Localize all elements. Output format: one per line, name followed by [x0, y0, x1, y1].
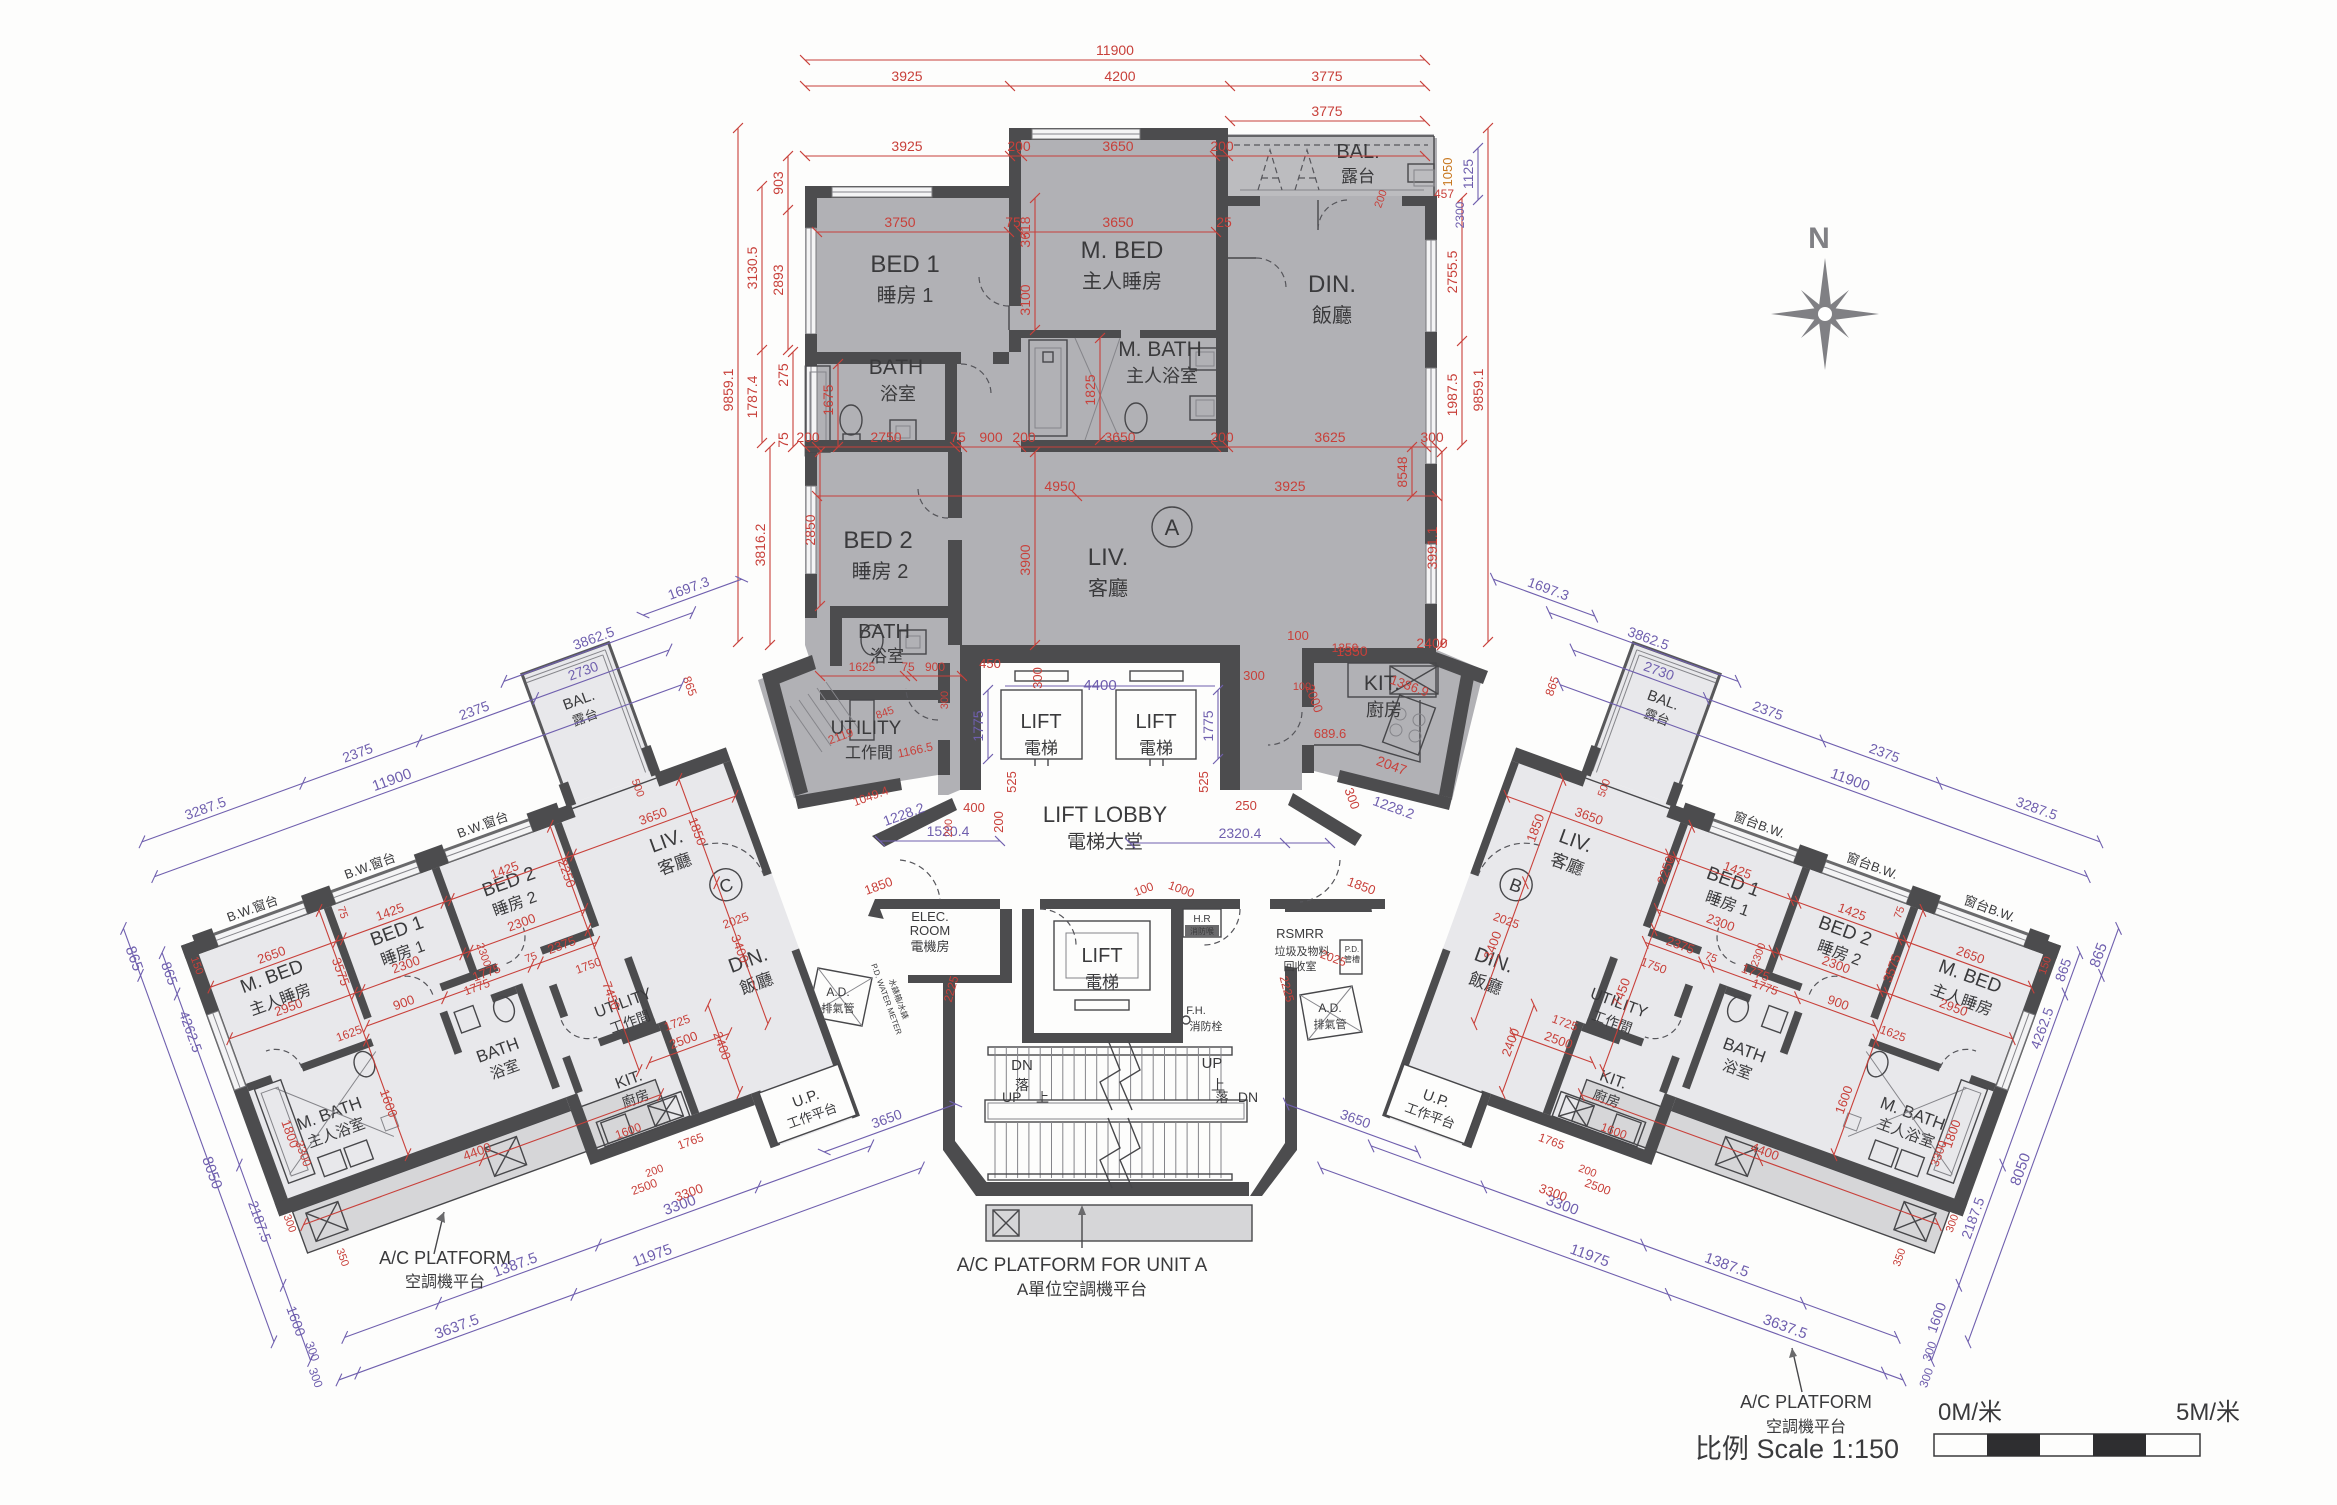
svg-text:900: 900	[979, 429, 1003, 445]
svg-text:11900: 11900	[1096, 42, 1134, 58]
svg-text:2320.4: 2320.4	[1219, 825, 1262, 841]
svg-text:1775: 1775	[1200, 710, 1216, 741]
svg-text:A.D.: A.D.	[826, 985, 849, 999]
svg-text:A/C PLATFORM FOR UNIT A: A/C PLATFORM FOR UNIT A	[957, 1255, 1208, 1276]
svg-text:LIFT LOBBY: LIFT LOBBY	[1043, 802, 1168, 827]
svg-text:廚房: 廚房	[1366, 699, 1402, 720]
svg-text:525: 525	[1196, 771, 1211, 793]
svg-text:LIFT: LIFT	[1135, 711, 1176, 733]
svg-text:M. BED: M. BED	[1081, 237, 1164, 264]
svg-text:200: 200	[1012, 429, 1036, 445]
svg-text:DIN.: DIN.	[1308, 271, 1356, 298]
svg-text:75: 75	[950, 429, 966, 445]
svg-text:8548: 8548	[1394, 456, 1410, 487]
svg-text:上: 上	[1036, 1090, 1049, 1105]
svg-text:275: 275	[775, 363, 791, 387]
svg-text:1787.4: 1787.4	[744, 375, 760, 418]
svg-text:電梯: 電梯	[1024, 739, 1058, 758]
svg-text:300: 300	[1420, 429, 1444, 445]
svg-text:450: 450	[979, 656, 1001, 671]
svg-text:回收室: 回收室	[1284, 959, 1317, 973]
svg-text:N: N	[1808, 222, 1830, 255]
svg-text:3816.2: 3816.2	[752, 523, 768, 566]
svg-text:689.6: 689.6	[1314, 726, 1347, 741]
svg-text:2893: 2893	[770, 264, 786, 295]
svg-text:3650: 3650	[1102, 138, 1133, 154]
svg-text:100: 100	[1293, 681, 1311, 693]
svg-text:525: 525	[1004, 771, 1019, 793]
svg-text:睡房 1: 睡房 1	[877, 284, 934, 307]
svg-text:1825: 1825	[1082, 374, 1098, 405]
svg-text:9859.1: 9859.1	[1470, 368, 1486, 411]
svg-text:UP: UP	[1202, 1055, 1223, 1072]
svg-text:2750: 2750	[870, 429, 901, 445]
svg-text:3650: 3650	[1104, 429, 1135, 445]
svg-text:2755.5: 2755.5	[1444, 250, 1460, 293]
svg-text:主人睡房: 主人睡房	[1082, 270, 1162, 293]
svg-text:BED 2: BED 2	[843, 527, 912, 554]
svg-text:1350: 1350	[1332, 641, 1359, 655]
svg-text:飯廳: 飯廳	[1312, 304, 1352, 327]
svg-text:200: 200	[796, 429, 820, 445]
svg-text:ROOM: ROOM	[910, 923, 950, 938]
svg-text:落: 落	[1215, 1090, 1228, 1105]
svg-text:2400: 2400	[1416, 635, 1447, 651]
svg-text:9859.1: 9859.1	[720, 368, 736, 411]
svg-text:BAL.: BAL.	[1336, 141, 1379, 163]
svg-text:DN: DN	[1011, 1057, 1033, 1074]
svg-text:903: 903	[770, 171, 786, 195]
svg-text:電梯: 電梯	[1085, 973, 1119, 992]
svg-text:排氣管: 排氣管	[822, 1001, 855, 1015]
svg-text:3925: 3925	[891, 138, 922, 154]
svg-text:3650: 3650	[1102, 214, 1133, 230]
svg-text:主人浴室: 主人浴室	[1126, 366, 1198, 386]
svg-text:P.D.: P.D.	[1345, 945, 1360, 954]
svg-text:25: 25	[1216, 214, 1232, 230]
svg-text:3775: 3775	[1311, 103, 1342, 119]
svg-text:電梯: 電梯	[1139, 739, 1173, 758]
svg-text:電梯大堂: 電梯大堂	[1067, 831, 1143, 853]
svg-text:客廳: 客廳	[1088, 577, 1128, 600]
svg-text:1050: 1050	[1440, 158, 1455, 187]
svg-text:75: 75	[775, 432, 791, 448]
svg-text:300: 300	[1030, 667, 1045, 689]
svg-text:100: 100	[1287, 628, 1309, 643]
svg-text:5M/米: 5M/米	[2176, 1399, 2240, 1426]
svg-text:200: 200	[943, 819, 955, 837]
svg-text:LIFT: LIFT	[1081, 945, 1122, 967]
svg-text:消防喉: 消防喉	[1190, 926, 1214, 936]
svg-text:排氣管: 排氣管	[1314, 1017, 1347, 1031]
svg-text:工作間: 工作間	[845, 744, 893, 762]
svg-text:1675: 1675	[820, 384, 836, 415]
svg-text:1987.5: 1987.5	[1444, 373, 1460, 416]
svg-text:2850: 2850	[802, 514, 818, 545]
svg-text:3750: 3750	[884, 214, 915, 230]
svg-text:200: 200	[1007, 138, 1031, 154]
svg-text:400: 400	[963, 800, 985, 815]
svg-text:3925: 3925	[891, 68, 922, 84]
svg-text:300: 300	[939, 691, 951, 709]
svg-text:1625: 1625	[849, 660, 876, 674]
svg-text:A: A	[1165, 515, 1180, 540]
svg-text:浴室: 浴室	[880, 384, 916, 404]
svg-text:3100: 3100	[1017, 284, 1033, 315]
svg-text:4950: 4950	[1044, 478, 1075, 494]
svg-text:1125: 1125	[1460, 159, 1476, 189]
svg-text:0M/米: 0M/米	[1938, 1399, 2002, 1426]
svg-text:BED 1: BED 1	[870, 251, 939, 278]
svg-text:900: 900	[925, 660, 945, 674]
svg-text:空調機平台: 空調機平台	[405, 1273, 485, 1291]
svg-text:3618: 3618	[1017, 216, 1033, 247]
svg-text:300: 300	[1243, 668, 1265, 683]
svg-text:2300: 2300	[1453, 201, 1467, 228]
svg-text:H.R: H.R	[1193, 914, 1210, 925]
svg-text:BATH: BATH	[869, 356, 923, 379]
svg-text:睡房 2: 睡房 2	[852, 560, 909, 583]
svg-text:A.D.: A.D.	[1318, 1001, 1341, 1015]
svg-text:3991.1: 3991.1	[1424, 526, 1440, 569]
svg-text:250: 250	[1235, 798, 1257, 813]
svg-text:UP: UP	[1002, 1089, 1021, 1105]
svg-text:BATH: BATH	[858, 621, 910, 643]
svg-text:3625: 3625	[1314, 429, 1345, 445]
svg-text:3130.5: 3130.5	[744, 246, 760, 289]
svg-text:消防栓: 消防栓	[1190, 1019, 1223, 1033]
svg-text:F.H.: F.H.	[1186, 1005, 1206, 1017]
svg-text:200: 200	[991, 811, 1006, 833]
svg-text:1775: 1775	[970, 710, 986, 741]
svg-text:A/C PLATFORM: A/C PLATFORM	[379, 1248, 511, 1268]
svg-text:M. BATH: M. BATH	[1118, 338, 1202, 361]
svg-text:DN: DN	[1238, 1089, 1258, 1105]
svg-text:LIFT: LIFT	[1020, 711, 1061, 733]
svg-text:露台: 露台	[1341, 167, 1375, 186]
svg-text:3925: 3925	[1274, 478, 1305, 494]
svg-text:A/C PLATFORM: A/C PLATFORM	[1740, 1392, 1872, 1412]
svg-text:RSMRR: RSMRR	[1276, 926, 1324, 941]
svg-text:3775: 3775	[1311, 68, 1342, 84]
svg-text:3900: 3900	[1017, 544, 1033, 575]
svg-text:電機房: 電機房	[910, 939, 949, 954]
svg-text:4200: 4200	[1104, 68, 1135, 84]
svg-text:457: 457	[1434, 187, 1454, 201]
svg-text:ELEC.: ELEC.	[911, 909, 949, 924]
svg-text:75: 75	[901, 660, 915, 674]
svg-text:200: 200	[1210, 138, 1234, 154]
svg-text:200: 200	[1210, 429, 1234, 445]
svg-text:比例 Scale 1:150: 比例 Scale 1:150	[1695, 1434, 1899, 1464]
svg-text:LIV.: LIV.	[1088, 544, 1129, 571]
svg-text:A單位空調機平台: A單位空調機平台	[1017, 1280, 1147, 1299]
